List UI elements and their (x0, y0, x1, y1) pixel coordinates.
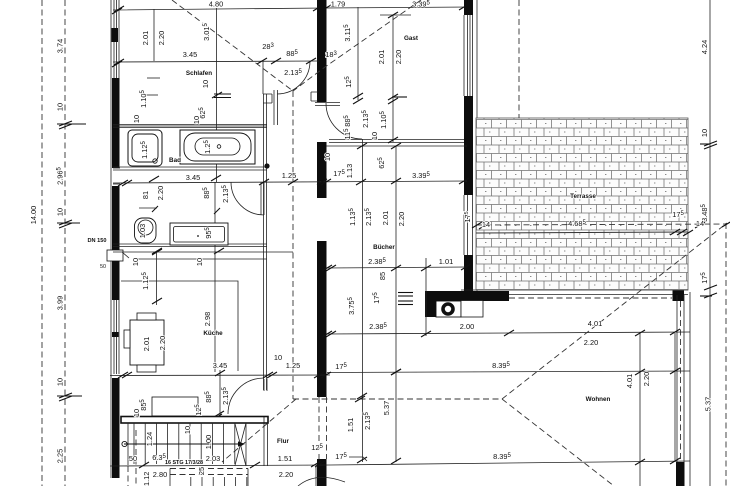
svg-text:10: 10 (195, 258, 204, 266)
svg-text:4.01: 4.01 (625, 374, 634, 388)
svg-text:Schlafen: Schlafen (186, 70, 212, 77)
svg-text:10: 10 (370, 132, 379, 140)
svg-text:2.01: 2.01 (141, 31, 150, 45)
svg-text:2.00: 2.00 (460, 322, 474, 331)
svg-text:2.20: 2.20 (584, 338, 598, 347)
svg-text:14.00: 14.00 (29, 206, 38, 225)
svg-text:4.80: 4.80 (209, 0, 223, 9)
svg-text:1.13: 1.13 (345, 164, 354, 178)
svg-text:2.20: 2.20 (158, 336, 167, 350)
svg-text:2.20: 2.20 (397, 212, 406, 226)
svg-text:Flur: Flur (277, 438, 289, 445)
svg-text:5.37: 5.37 (382, 401, 391, 415)
svg-text:1.79: 1.79 (331, 0, 345, 9)
svg-text:10: 10 (192, 116, 201, 124)
svg-text:50: 50 (100, 264, 106, 270)
svg-text:Terrasse: Terrasse (570, 193, 596, 200)
svg-text:1.03: 1.03 (138, 224, 147, 238)
svg-text:2.20: 2.20 (279, 470, 293, 479)
svg-text:1.24: 1.24 (145, 432, 154, 446)
svg-text:1.25: 1.25 (286, 361, 300, 370)
svg-text:1.51: 1.51 (278, 454, 292, 463)
svg-text:10: 10 (132, 409, 141, 417)
svg-text:3.74: 3.74 (56, 39, 65, 53)
svg-text:5.37: 5.37 (704, 397, 713, 411)
svg-text:1.51: 1.51 (346, 418, 355, 432)
svg-text:14: 14 (482, 220, 490, 229)
svg-text:3.99: 3.99 (56, 296, 65, 310)
svg-text:Bad: Bad (169, 157, 181, 164)
svg-text:2.01: 2.01 (381, 211, 390, 225)
svg-text:2.20: 2.20 (642, 372, 651, 386)
svg-text:2.20: 2.20 (394, 50, 403, 64)
svg-text:50: 50 (129, 454, 137, 463)
svg-text:Gast: Gast (404, 35, 419, 42)
svg-text:1.12: 1.12 (142, 472, 151, 486)
svg-text:10: 10 (56, 378, 65, 386)
svg-text:Wohnen: Wohnen (586, 396, 611, 403)
svg-text:1.25: 1.25 (282, 171, 296, 180)
svg-text:85: 85 (378, 272, 387, 280)
svg-text:10: 10 (56, 103, 65, 111)
svg-text:2.98: 2.98 (203, 312, 212, 326)
svg-text:Bücher: Bücher (373, 244, 395, 251)
svg-text:DN 150: DN 150 (88, 238, 107, 244)
svg-text:3.45: 3.45 (213, 361, 227, 370)
svg-text:10: 10 (274, 353, 282, 362)
svg-text:2.03: 2.03 (206, 454, 220, 463)
svg-text:1.00: 1.00 (204, 435, 213, 449)
svg-text:2.25: 2.25 (56, 449, 65, 463)
svg-text:1.01: 1.01 (439, 257, 453, 266)
svg-text:2.20: 2.20 (157, 31, 166, 45)
svg-text:81: 81 (141, 191, 150, 199)
svg-text:25: 25 (197, 467, 206, 475)
svg-text:3.45: 3.45 (186, 173, 200, 182)
svg-text:10: 10 (201, 80, 210, 88)
svg-text:10: 10 (323, 153, 332, 161)
svg-text:10: 10 (183, 426, 192, 434)
svg-text:16 STG 17/3/28: 16 STG 17/3/28 (165, 460, 203, 466)
svg-text:4.01: 4.01 (588, 319, 602, 328)
svg-text:Küche: Küche (203, 330, 223, 337)
svg-text:2.01: 2.01 (142, 337, 151, 351)
svg-text:14: 14 (696, 219, 704, 228)
svg-text:2.01: 2.01 (377, 50, 386, 64)
svg-text:10: 10 (131, 258, 140, 266)
svg-text:10: 10 (132, 115, 141, 123)
svg-text:2.80: 2.80 (153, 470, 167, 479)
svg-text:2.20: 2.20 (156, 186, 165, 200)
svg-text:10: 10 (56, 208, 65, 216)
svg-text:4.24: 4.24 (700, 40, 709, 54)
svg-text:3.45: 3.45 (183, 50, 197, 59)
svg-text:10: 10 (700, 129, 709, 137)
